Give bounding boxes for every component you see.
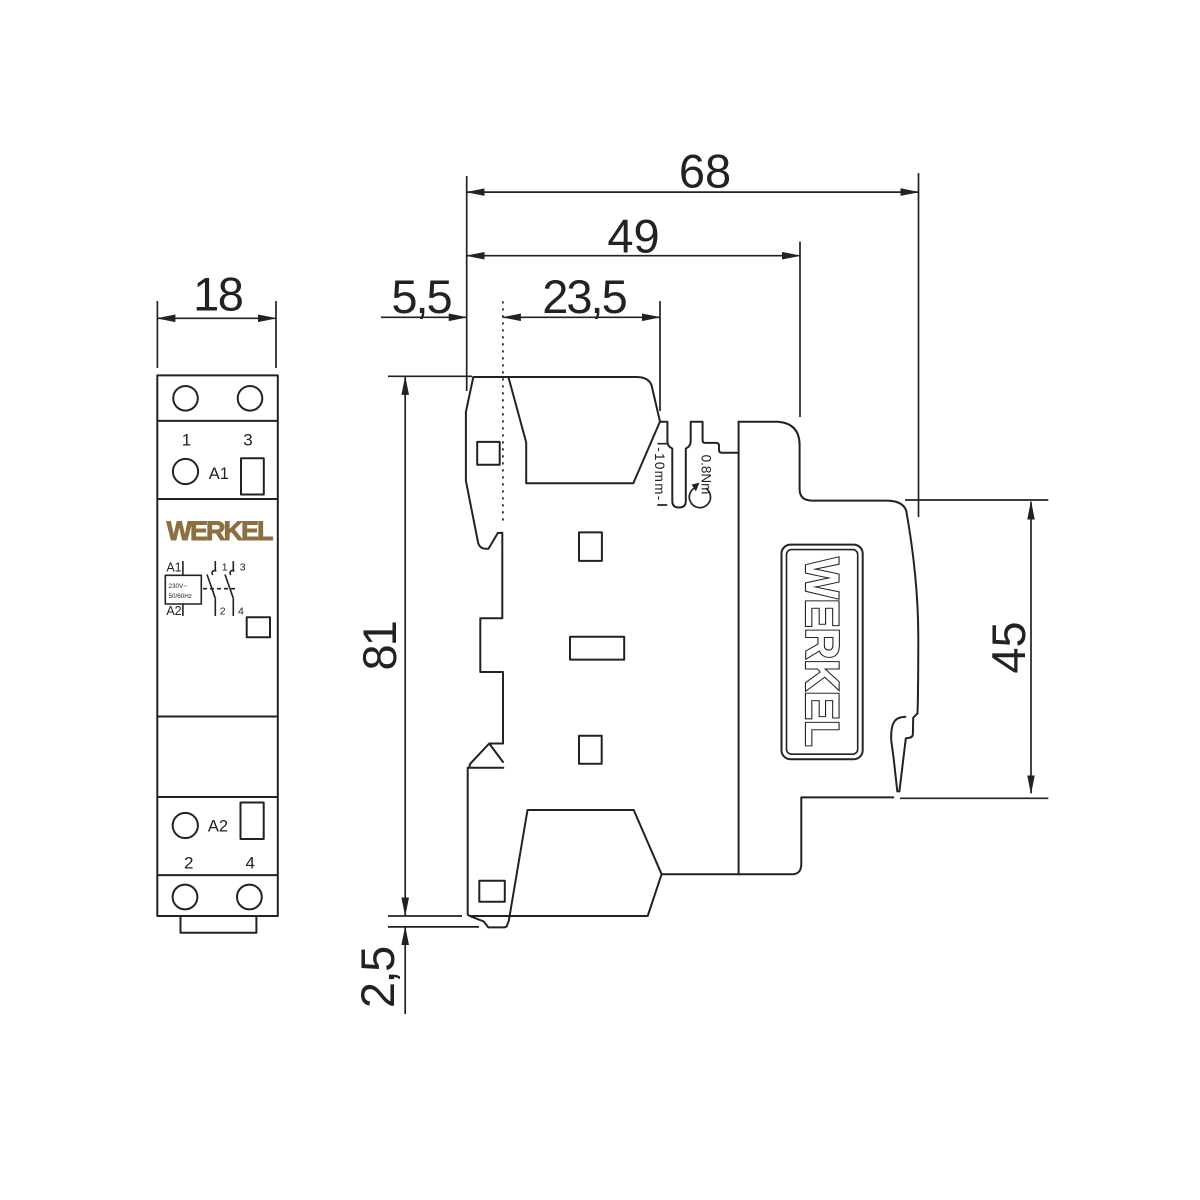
svg-text:3: 3 bbox=[240, 562, 246, 574]
svg-text:68: 68 bbox=[679, 145, 731, 198]
svg-text:A2: A2 bbox=[208, 818, 228, 836]
svg-text:2: 2 bbox=[220, 606, 226, 618]
svg-text:50/60Hz: 50/60Hz bbox=[169, 593, 192, 600]
svg-text:1: 1 bbox=[182, 431, 191, 450]
svg-text:230V~: 230V~ bbox=[169, 583, 188, 590]
svg-text:45: 45 bbox=[982, 621, 1035, 673]
svg-text:A1: A1 bbox=[209, 465, 229, 483]
svg-text:A1: A1 bbox=[166, 561, 181, 575]
svg-text:WERKEL: WERKEL bbox=[796, 557, 849, 746]
svg-text:0.8Nm: 0.8Nm bbox=[699, 455, 714, 495]
svg-text:WERKEL: WERKEL bbox=[167, 516, 273, 546]
svg-text:18: 18 bbox=[193, 268, 243, 321]
svg-text:81: 81 bbox=[353, 622, 406, 670]
svg-text:3: 3 bbox=[243, 431, 252, 450]
svg-text:A2: A2 bbox=[166, 604, 181, 618]
svg-text:49: 49 bbox=[607, 210, 659, 263]
svg-text:2,5: 2,5 bbox=[351, 947, 404, 1008]
svg-text:23,5: 23,5 bbox=[542, 270, 626, 323]
svg-text:2: 2 bbox=[184, 854, 193, 873]
svg-text:4: 4 bbox=[245, 854, 254, 873]
svg-text:-10mm-: -10mm- bbox=[652, 447, 667, 501]
svg-text:1: 1 bbox=[222, 562, 228, 574]
svg-text:5,5: 5,5 bbox=[391, 270, 451, 323]
svg-text:4: 4 bbox=[238, 606, 244, 618]
